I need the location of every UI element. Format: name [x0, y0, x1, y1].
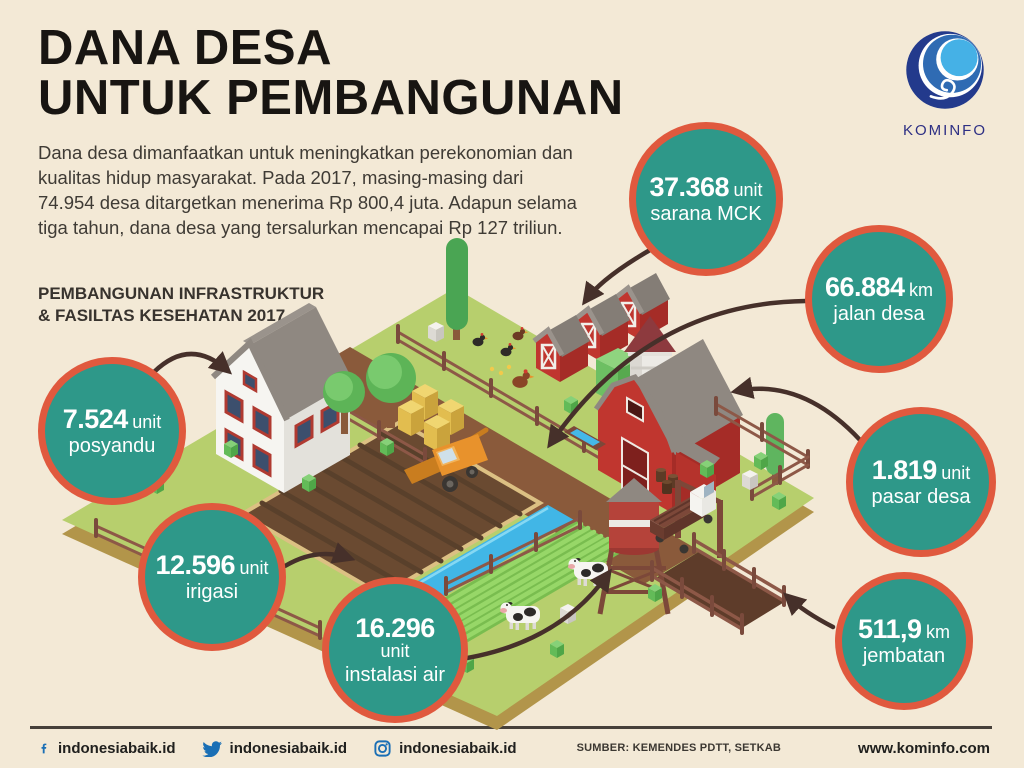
instagram-icon — [373, 739, 392, 758]
twitter-icon — [202, 739, 223, 757]
stat-instalasi-air: 16.296 unit instalasi air — [322, 577, 468, 723]
footer-instagram: indonesiabaik.id — [373, 739, 517, 758]
facebook-handle: indonesiabaik.id — [58, 740, 176, 757]
stat-irigasi: 12.596 unit irigasi — [138, 503, 286, 651]
source-credit: SUMBER: KEMENDES PDTT, SETKAB — [577, 742, 781, 754]
twitter-handle: indonesiabaik.id — [230, 740, 348, 757]
website-url: www.kominfo.com — [858, 740, 990, 757]
stat-jalan-desa: 66.884 km jalan desa — [805, 225, 953, 373]
instagram-handle: indonesiabaik.id — [399, 740, 517, 757]
arrow-posyandu — [154, 354, 227, 372]
footer: indonesiabaik.id indonesiabaik.id indone… — [38, 734, 990, 762]
stat-pasar-desa: 1.819 unit pasar desa — [846, 407, 996, 557]
stat-jembatan: 511,9 km jembatan — [835, 572, 973, 710]
arrow-jembatan — [788, 597, 833, 627]
cypress-tree-top — [446, 238, 468, 340]
stat-posyandu: 7.524 unit posyandu — [38, 357, 186, 505]
footer-twitter: indonesiabaik.id — [202, 739, 348, 757]
stat-sarana-mck: 37.368 unit sarana MCK — [629, 122, 783, 276]
facebook-icon — [38, 738, 51, 759]
footer-facebook: indonesiabaik.id — [38, 738, 176, 759]
arrow-pasar-desa — [737, 389, 860, 440]
infographic-page: DANA DESA UNTUK PEMBANGUNAN Dana desa di… — [0, 0, 1024, 768]
